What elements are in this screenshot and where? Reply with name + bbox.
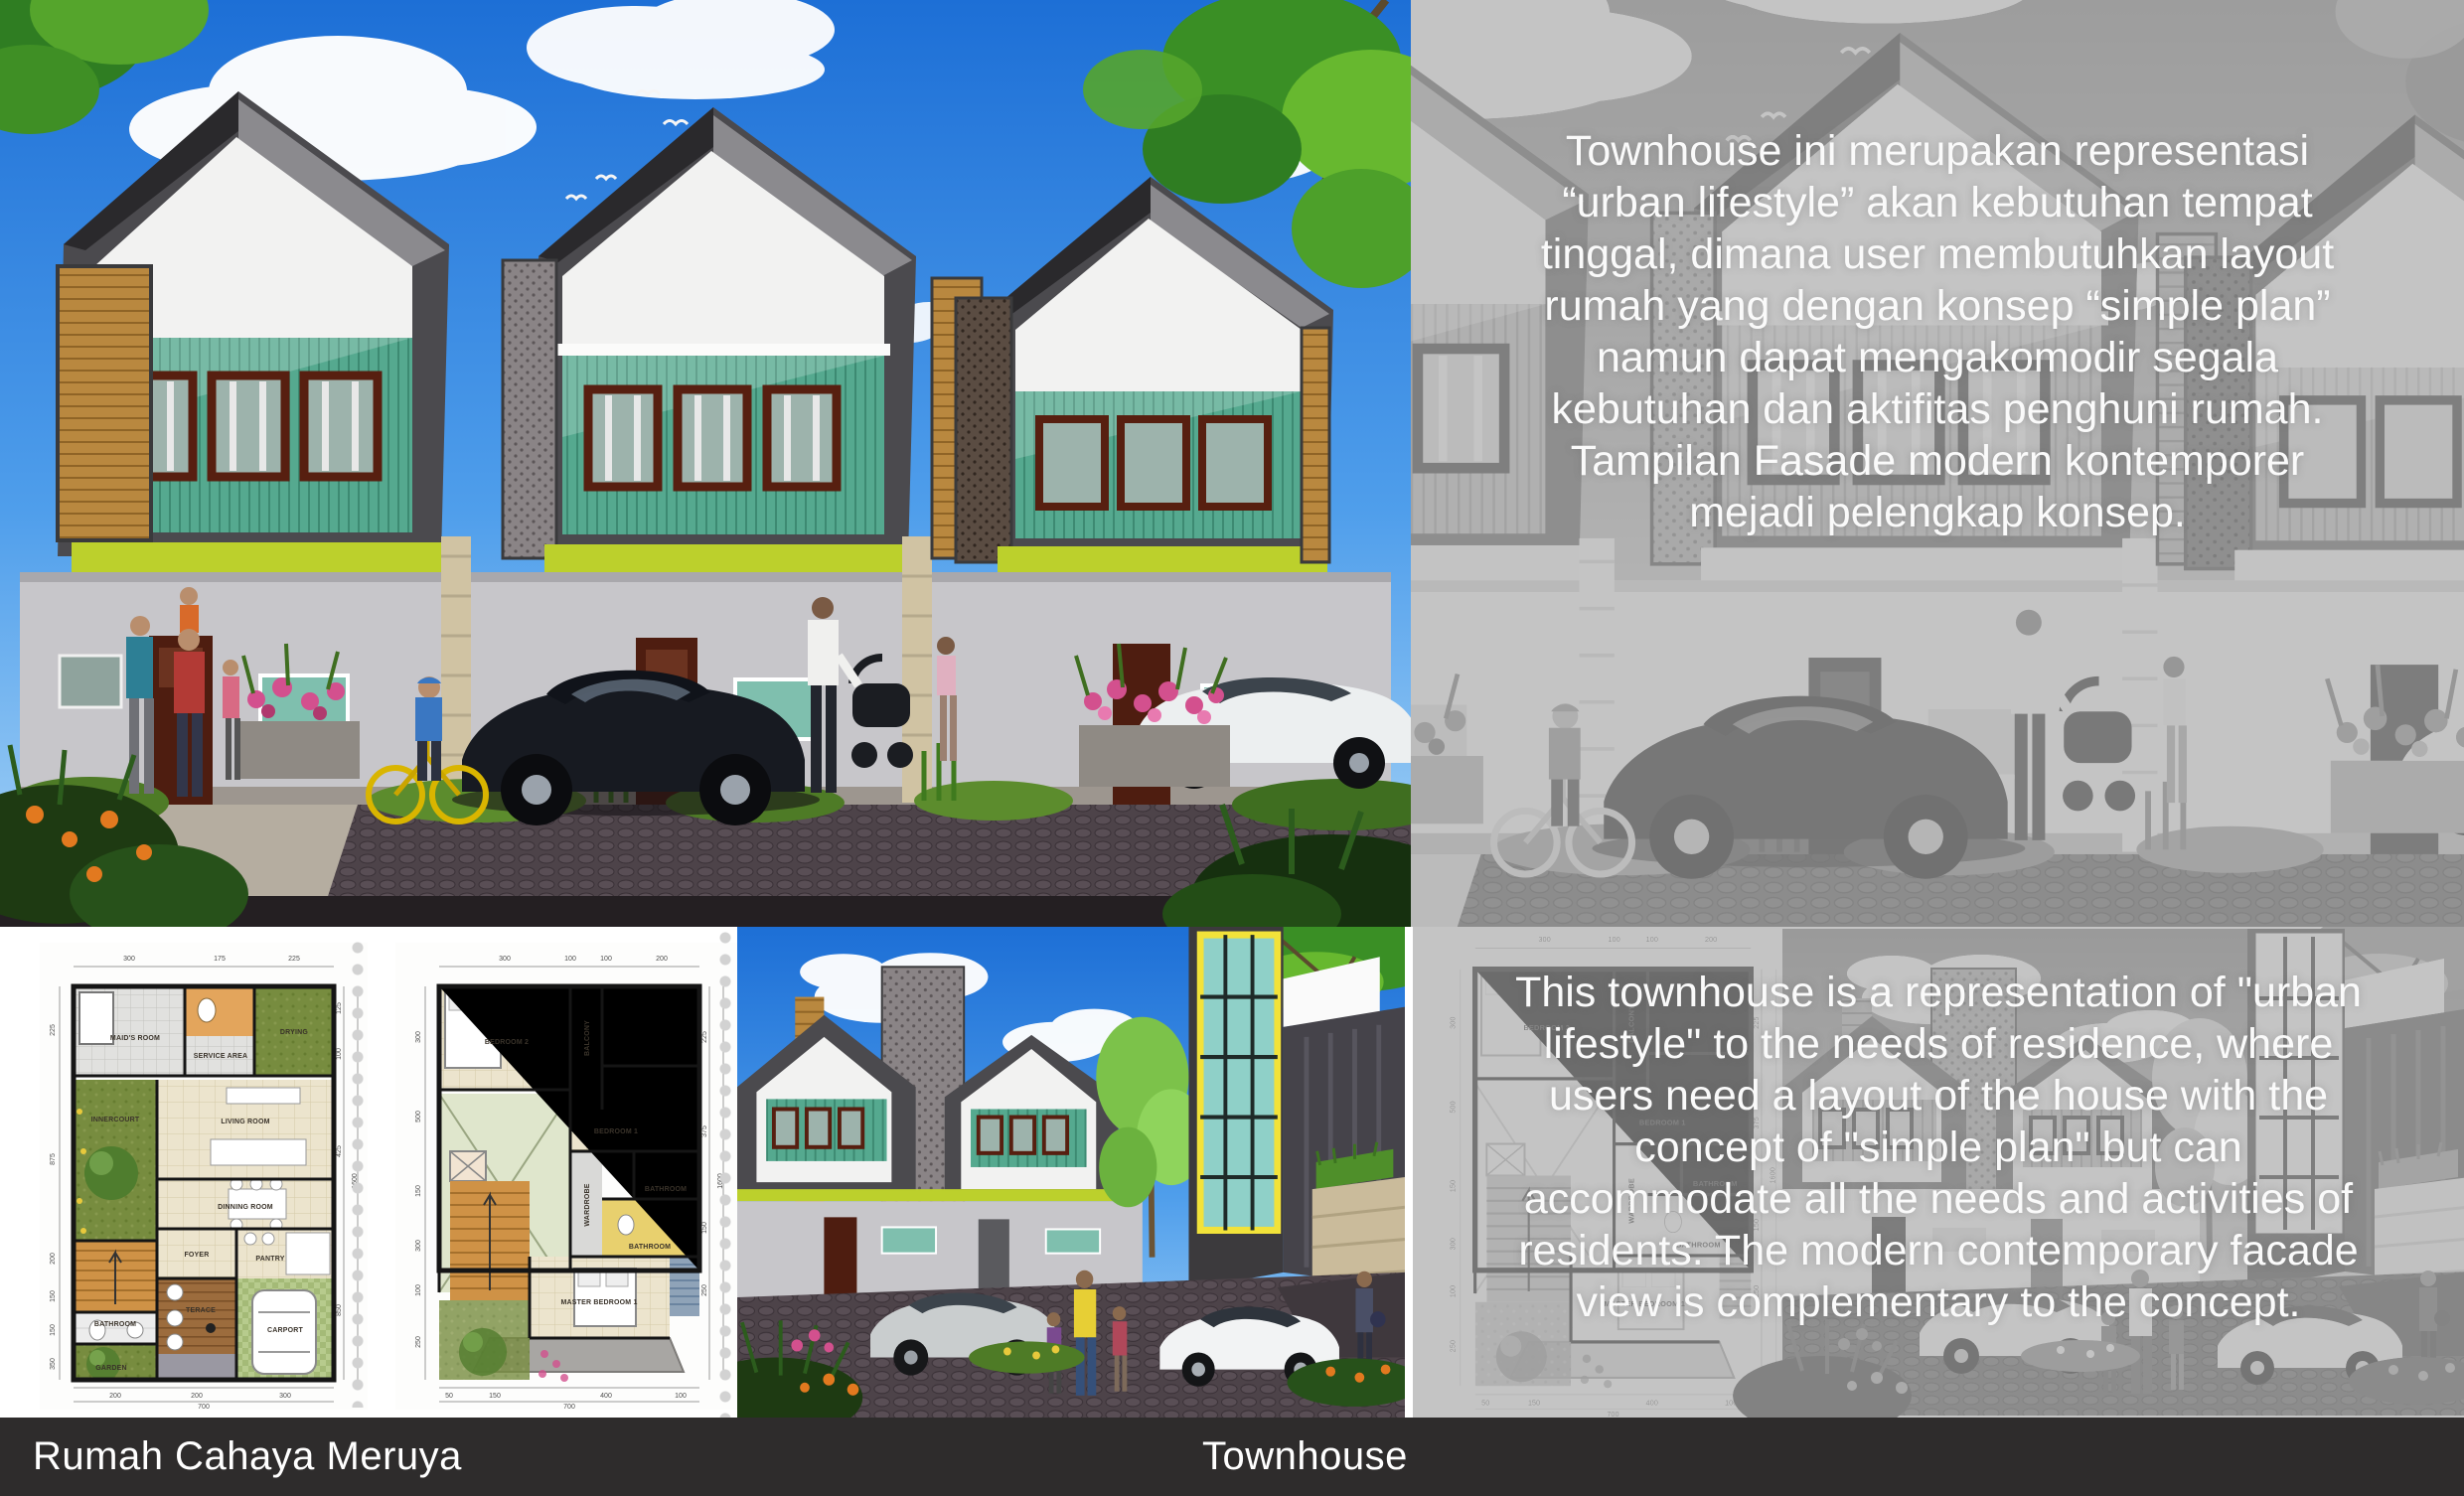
plan1-dim: 225: [50, 1024, 57, 1036]
plan1-label-foyer: FOYER: [184, 1252, 209, 1259]
plan2-dim: 100: [415, 1284, 422, 1296]
text-line: accommodate all the needs and activities…: [1433, 1173, 2444, 1225]
plan2-dim: 100: [600, 956, 612, 963]
plan1-label-pantry: PANTRY: [255, 1256, 284, 1263]
plan1-label-terrace: TERACE: [186, 1307, 216, 1314]
plan1-dim: 875: [50, 1153, 57, 1165]
render-perspective: [737, 927, 1405, 1418]
plan1-label-maids-room: MAID'S ROOM: [110, 1035, 160, 1042]
plan1-label-drying: DRYING: [280, 1029, 309, 1036]
plan2-dim: 200: [656, 956, 668, 963]
plan2-label-balcony: BALCONY: [584, 1020, 591, 1056]
text-line: residents. The modern contemporary facad…: [1433, 1225, 2444, 1276]
plan1-dim: 150: [50, 1324, 57, 1336]
plan2-label-bedroom2: BEDROOM 2: [485, 1039, 529, 1046]
plan2-label-wardrobe: WARDROBE: [584, 1183, 591, 1226]
plan2-dim: 500: [415, 1111, 422, 1122]
text-line: rumah yang dengan konsep “simple plan”: [1431, 280, 2444, 332]
plan1-label-carport: CARPORT: [267, 1327, 304, 1334]
plan2-dim: 300: [415, 1031, 422, 1043]
render-front-elevation: [0, 0, 1411, 927]
torn-edge-left-of-render: [717, 927, 733, 1418]
plan1-dim: 850: [336, 1304, 343, 1316]
plan1-dim: 175: [214, 956, 226, 963]
text-line: tinggal, dimana user membutuhkan layout: [1431, 228, 2444, 280]
plan2-dim: 400: [600, 1393, 612, 1400]
plan2-label-master-bedroom: MASTER BEDROOM 1: [560, 1299, 637, 1306]
text-line: Tampilan Fasade modern kontemporer: [1431, 435, 2444, 487]
plan1-dim: 425: [336, 1145, 343, 1157]
plan2-dim: 100: [675, 1393, 687, 1400]
project-category: Townhouse: [1202, 1418, 1408, 1496]
plan1-dim-total-width: 700: [198, 1404, 210, 1410]
plan2-dim: 375: [701, 1125, 708, 1137]
plan2-dim: 150: [415, 1185, 422, 1197]
text-line: This townhouse is a representation of "u…: [1433, 967, 2444, 1018]
plan1-dim: 125: [336, 1002, 343, 1014]
plan1-dim: 300: [279, 1393, 291, 1400]
text-line: view is complementary to the concept.: [1433, 1276, 2444, 1328]
torn-edge-between-plans: [350, 937, 366, 1408]
plan1-dim: 300: [123, 956, 135, 963]
plan2-dim: 150: [701, 1222, 708, 1234]
project-title: Rumah Cahaya Meruya: [33, 1418, 462, 1496]
footer-bar: Rumah Cahaya Meruya Townhouse: [0, 1418, 2464, 1496]
plan1-dim: 200: [191, 1393, 203, 1400]
floor-plan-ground: MAID'S ROOM SERVICE AREA DRYING INNERCOU…: [40, 943, 368, 1410]
plan1-label-innercourt: INNERCOURT: [91, 1117, 140, 1123]
plan1-dim: 350: [50, 1358, 57, 1370]
plan2-dim: 300: [415, 1240, 422, 1252]
panel-description-english: This townhouse is a representation of "u…: [1413, 927, 2464, 1418]
text-line: Townhouse ini merupakan representasi: [1431, 125, 2444, 177]
description-text-english: This townhouse is a representation of "u…: [1433, 967, 2444, 1328]
plan1-label-bathroom: BATHROOM: [94, 1321, 136, 1328]
plan2-dim: 300: [499, 956, 511, 963]
plan1-label-service-area: SERVICE AREA: [194, 1053, 248, 1060]
portfolio-board: Townhouse ini merupakan representasi “ur…: [0, 0, 2464, 1496]
floor-plans-sheet: MAID'S ROOM SERVICE AREA DRYING INNERCOU…: [0, 927, 737, 1418]
plan1-label-living-room: LIVING ROOM: [221, 1119, 269, 1125]
text-line: namun dapat mengakomodir segala: [1431, 332, 2444, 383]
plan2-dim-total-width: 700: [563, 1404, 575, 1410]
text-line: concept of "simple plan" but can: [1433, 1122, 2444, 1173]
plan1-dim: 200: [50, 1253, 57, 1265]
plan1-label-dinning-room: DINNING ROOM: [218, 1204, 273, 1211]
text-line: kebutuhan dan aktifitas penghuni rumah.: [1431, 383, 2444, 435]
floor-plan-upper: BEDROOM 2 BALCONY BEDROOM 1 BATHROOM WAR…: [395, 943, 738, 1410]
plan1-dim: 100: [336, 1048, 343, 1060]
plan2-dim: 250: [701, 1284, 708, 1296]
description-text-indonesian: Townhouse ini merupakan representasi “ur…: [1431, 125, 2444, 538]
plan2-dim: 250: [415, 1336, 422, 1348]
text-line: users need a layout of the house with th…: [1433, 1070, 2444, 1122]
plan2-label-bathroom-b: BATHROOM: [629, 1244, 671, 1251]
text-line: lifestyle" to the needs of residence, wh…: [1433, 1018, 2444, 1070]
plan2-dim: 50: [445, 1393, 453, 1400]
plan1-dim: 225: [288, 956, 300, 963]
text-line: mejadi pelengkap konsep.: [1431, 487, 2444, 538]
plan2-dim: 150: [489, 1393, 501, 1400]
divider-strip: [1405, 927, 1413, 1418]
plan1-label-garden: GARDEN: [95, 1365, 127, 1372]
plan2-dim: 100: [564, 956, 576, 963]
plan1-dim: 200: [109, 1393, 121, 1400]
panel-description-indonesian: Townhouse ini merupakan representasi “ur…: [1411, 0, 2464, 927]
plan2-dim: 225: [701, 1031, 708, 1043]
plan2-label-bedroom1: BEDROOM 1: [594, 1128, 638, 1135]
plan2-label-bathroom-a: BATHROOM: [645, 1186, 687, 1193]
text-line: “urban lifestyle” akan kebutuhan tempat: [1431, 177, 2444, 228]
plan1-dim: 150: [50, 1290, 57, 1302]
